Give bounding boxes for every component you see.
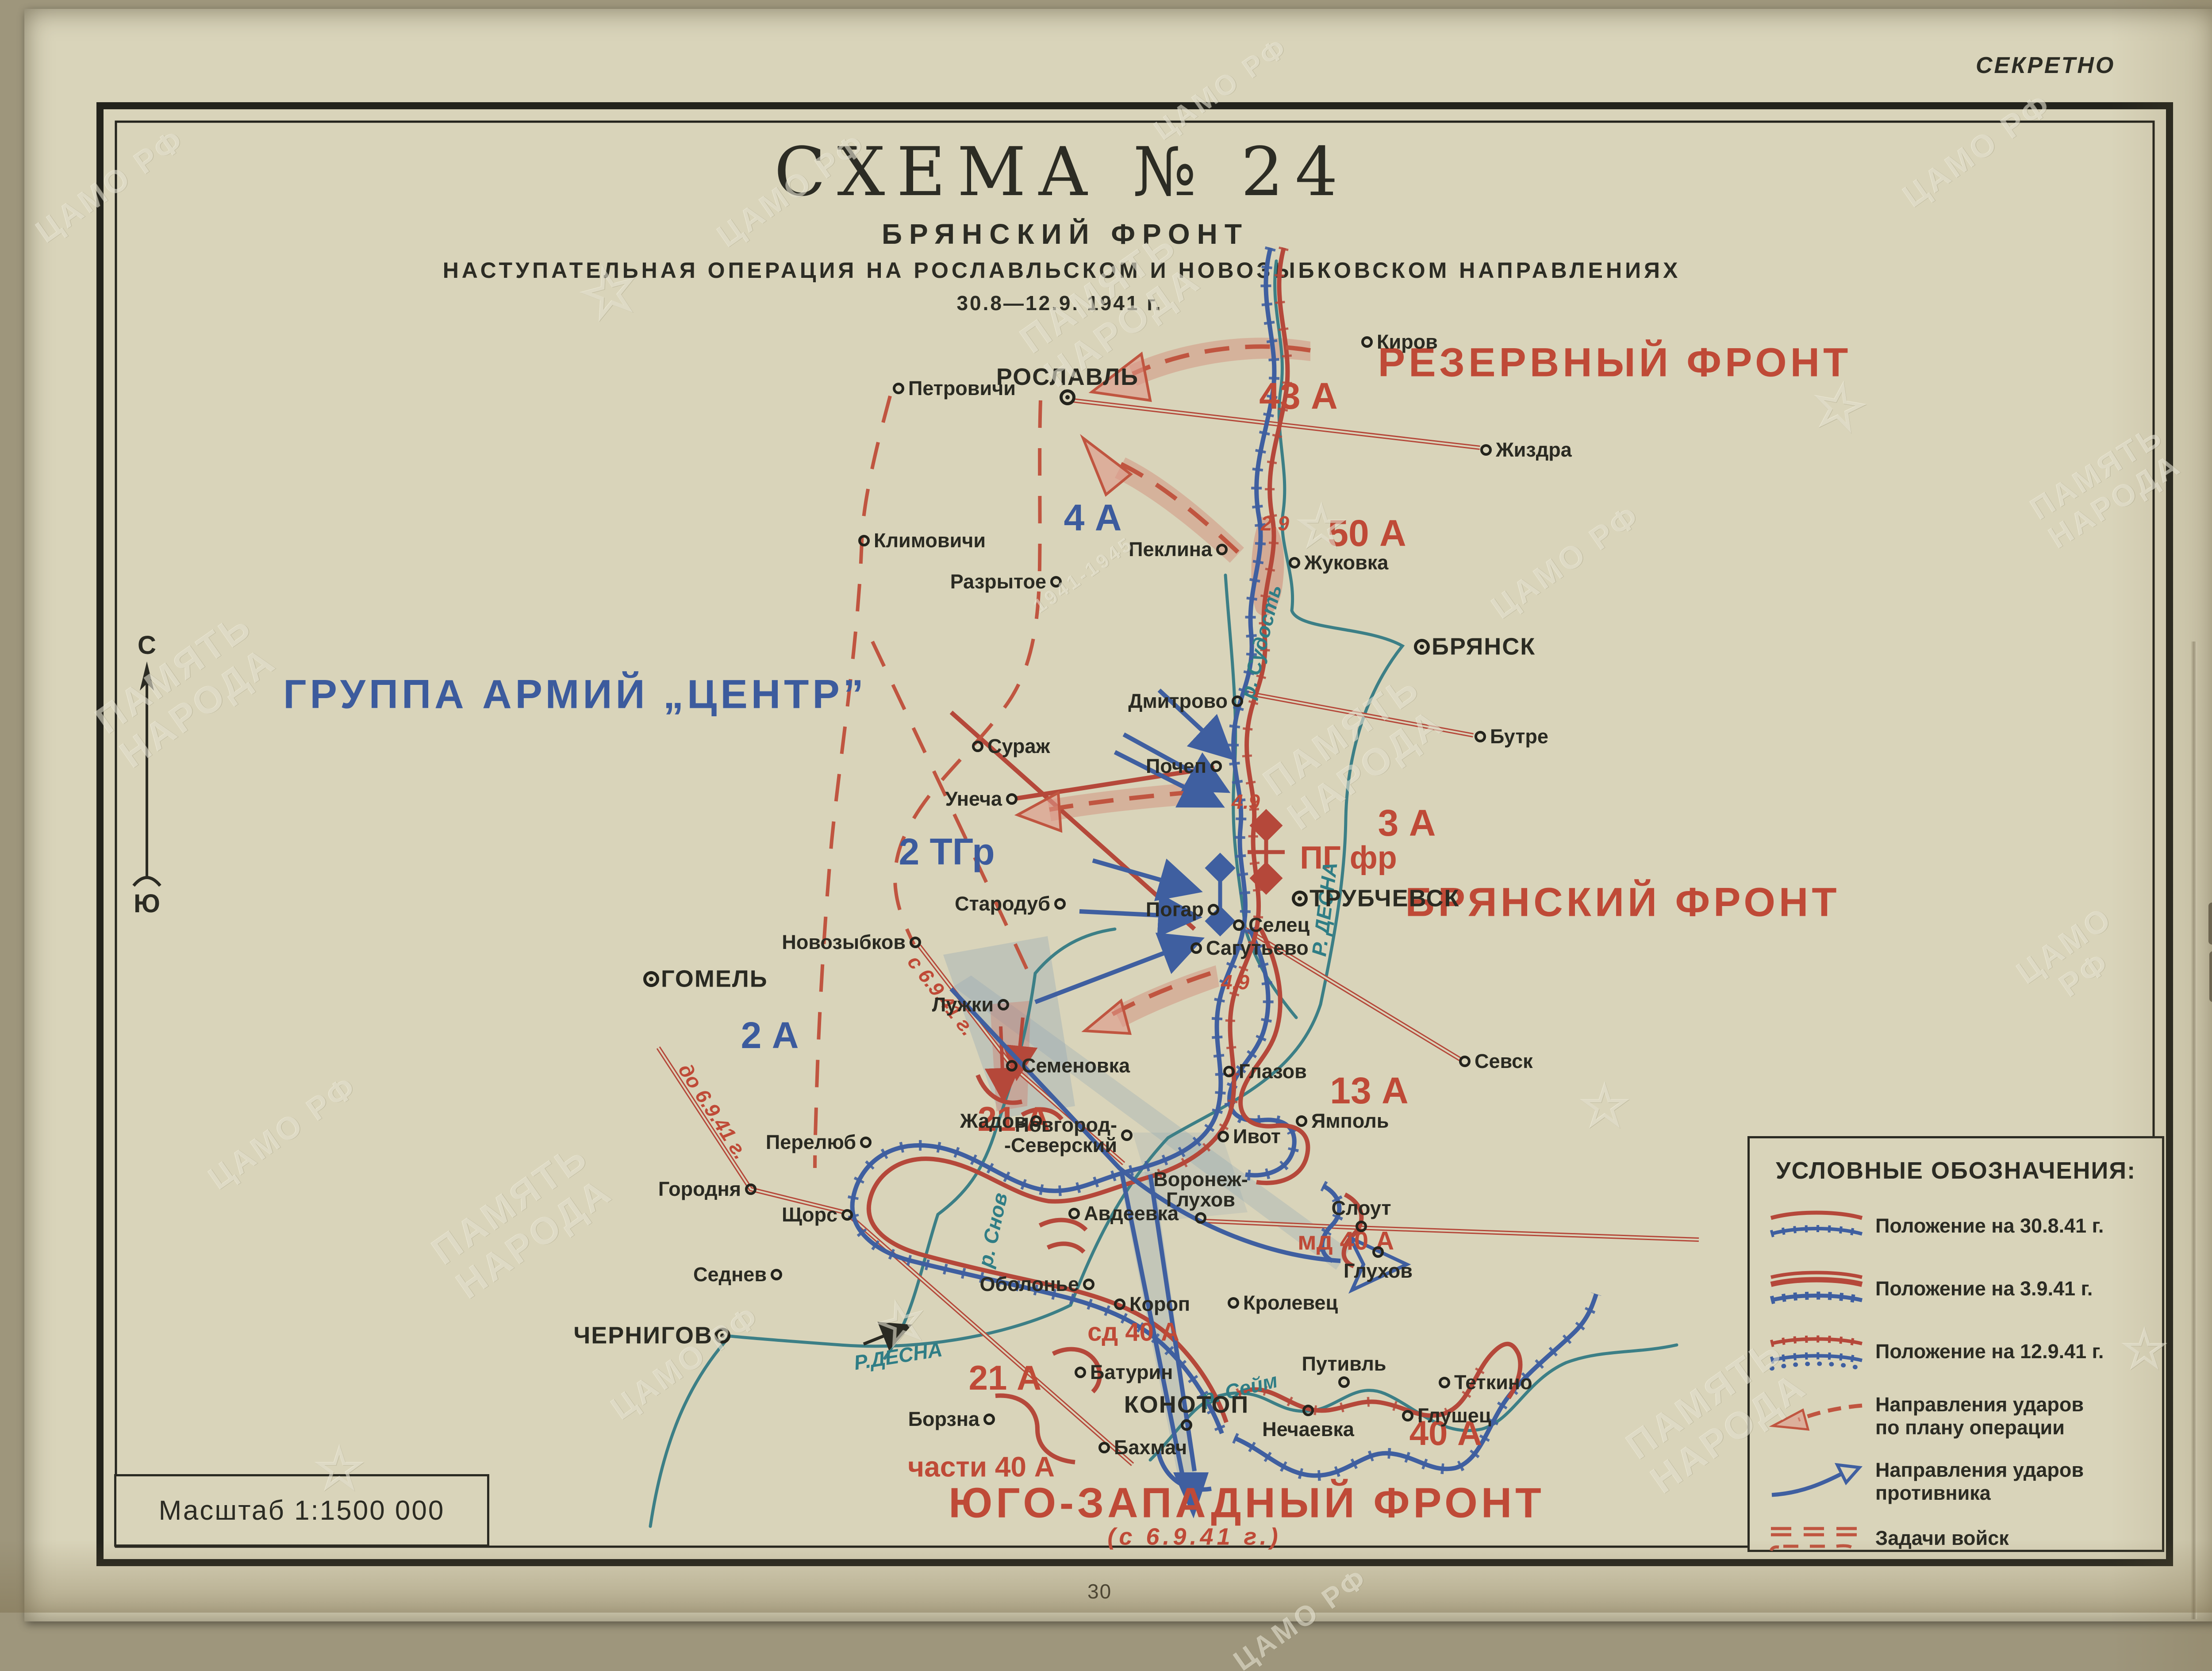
city-dot [1208,904,1219,915]
front-label: РЕЗЕРВНЫЙ ФРОНТ [1378,342,1852,384]
city-label: Жиздра [1496,440,1572,460]
front-label: (с 6.9.41 г.) [1107,1525,1281,1550]
city-dot [1075,1367,1086,1378]
date-label: 4.9 [1221,972,1249,993]
legend-item-label: Задачи войск [1875,1527,2009,1550]
city-dot [643,971,659,987]
city-label: Глухов [1344,1261,1413,1281]
city-label: Пеклина [1129,539,1212,560]
city-dot [858,535,870,546]
paper-crease [2191,642,2197,1619]
city-label: Климовичи [874,530,986,551]
city-label: Батурин [1090,1362,1173,1383]
city-label: Киров [1377,332,1438,352]
city-dot [1289,557,1300,569]
city-dot [1210,761,1222,772]
city-label: Сагутьево [1206,938,1309,958]
legend-item-label: Положение на 3.9.41 г. [1875,1277,2093,1300]
city-dot [745,1183,757,1195]
city-label: Стародуб [955,894,1050,914]
legend-item: Положение на 12.9.41 г. [1766,1330,2104,1373]
legend-symbol-pos-3-9 [1766,1268,1867,1310]
front-label: ЮГО-ЗАПАДНЫЙ ФРОНТ [949,1481,1545,1526]
city-dot [1302,1405,1314,1416]
page-number: 30 [1087,1579,1112,1603]
city-label: ГОМЕЛЬ [661,967,768,991]
city-label: Ивот [1233,1126,1281,1147]
city-dot [1060,389,1075,405]
city-dot [893,383,904,394]
legend-item-label: Положение на 30.8.41 г. [1875,1214,2104,1237]
city-label: Путивль [1302,1354,1386,1374]
city-label: Глазов [1239,1061,1307,1082]
front-label: БРЯНСКИЙ ФРОНТ [1405,881,1840,924]
city-dot [1223,1066,1235,1077]
legend-item: Направления ударов по плану операции [1766,1393,2084,1439]
city-label: Почеп [1146,756,1206,776]
binding-mark [2209,951,2212,1002]
city-dot [1006,1060,1018,1072]
scanned-map-page: СЕКРЕТНО СХЕМА № 24 БРЯНСКИЙ ФРОНТ НАСТУ… [0,0,2212,1671]
city-label: Щорс [782,1205,837,1225]
unit-label: 4 А [1064,498,1122,537]
legend-item-label: Направления ударов противника [1875,1459,2084,1505]
city-dot [1083,1279,1094,1290]
city-label: Сураж [987,736,1050,757]
front-label: ГРУППА АРМИЙ „ЦЕНТР” [283,673,867,716]
city-dot [1216,544,1228,555]
city-dot [1292,891,1308,907]
unit-label: 13 А [1330,1071,1408,1110]
city-dot [998,999,1009,1010]
city-dot [1459,1056,1471,1067]
city-dot [860,1137,872,1148]
city-label: Борзна [908,1409,979,1429]
binding-mark [2208,903,2212,945]
city-dot [1480,444,1492,456]
city-dot [1232,695,1243,707]
city-label: Бутре [1490,726,1548,747]
date-label: 4.9 [1232,791,1260,812]
city-label: Короп [1129,1294,1190,1314]
city-dot [1361,336,1373,348]
city-label: Седнев [693,1264,767,1285]
city-dot [1114,1298,1125,1310]
date-label: 2.9 [1261,513,1289,534]
city-dot [1475,731,1486,742]
city-dot [972,741,983,752]
compass-north-label: С [138,630,156,660]
map-subtitle-dates: 30.8—12.9. 1941 г. [956,291,1162,315]
city-label: РОСЛАВЛЬ [996,365,1139,389]
city-label: ЧЕРНИГОВ [573,1323,713,1348]
city-dot [1296,1115,1307,1127]
unit-label: сд 40 А [1087,1319,1179,1346]
city-label: Теткино [1454,1372,1532,1393]
city-dot [1181,1419,1192,1431]
map-subtitle-front: БРЯНСКИЙ ФРОНТ [882,218,1249,250]
city-dot [1098,1442,1110,1453]
city-label: Ямполь [1311,1111,1389,1131]
city-label: Севск [1475,1051,1533,1072]
unit-label: 43 А [1259,376,1337,415]
city-label: ТРУБЧЕВСК [1310,886,1460,910]
unit-label: ПГ фр [1300,841,1397,875]
city-dot [714,1328,730,1344]
city-dot [1356,1221,1367,1232]
city-label: Глушец [1417,1406,1491,1426]
map-subtitle-operation: НАСТУПАТЕЛЬНАЯ ОПЕРАЦИЯ НА РОСЛАВЛЬСКОМ … [443,257,1681,283]
unit-label: 21 А [969,1360,1042,1396]
city-dot [1006,793,1018,805]
city-label: Унеча [945,789,1002,809]
city-label: Семеновка [1022,1056,1130,1076]
compass-south-label: Ю [134,889,160,918]
legend-item: Положение на 3.9.41 г. [1766,1268,2093,1310]
city-dot [1402,1410,1413,1421]
map-title: СХЕМА № 24 [774,133,1349,211]
legend-item: Задачи войск [1766,1517,2009,1560]
unit-label: 3 А [1378,803,1436,842]
city-label: Новозыбков [782,932,906,953]
city-dot [1190,942,1202,954]
scale-label: Масштаб 1:1500 000 [159,1495,445,1526]
legend-item: Положение на 30.8.41 г. [1766,1205,2104,1247]
legend-item-label: Положение на 12.9.41 г. [1875,1340,2104,1363]
city-dot [910,937,921,948]
city-dot [771,1269,782,1280]
city-label: Новгород- -Северский [1004,1115,1117,1156]
city-dot [1228,1297,1239,1309]
city-label: БРЯНСК [1432,634,1536,659]
legend-symbol-tasks [1766,1517,1867,1560]
unit-label: 2 ТГр [899,832,995,871]
city-dot [1195,1212,1206,1224]
city-dot [1233,919,1244,931]
city-dot [1414,639,1430,655]
legend-symbol-pos-12-9 [1766,1330,1867,1373]
city-label: Нечаевка [1262,1419,1354,1440]
unit-label: части 40 А [908,1452,1055,1482]
city-label: Кролевец [1243,1293,1338,1313]
city-dot [1439,1377,1450,1388]
city-label: Селец [1248,915,1310,935]
city-label: Бахмач [1114,1437,1187,1458]
city-label: Слоут [1332,1198,1391,1218]
city-label: Дмитрово [1128,691,1228,711]
legend-box: УСЛОВНЫЕ ОБОЗНАЧЕНИЯ: Положение на 30.8.… [1747,1136,2164,1552]
city-dot [1372,1246,1384,1258]
city-dot [1050,576,1062,588]
city-dot [1121,1129,1133,1141]
city-label: КОНОТОП [1124,1393,1249,1417]
city-label: Перелюб [766,1132,856,1152]
city-dot [1338,1376,1350,1388]
city-label: Городня [658,1179,741,1199]
city-label: Лужки [932,995,994,1015]
unit-label: 50 А [1328,514,1406,553]
city-dot [1054,898,1066,910]
unit-label: 2 А [741,1016,799,1055]
secret-stamp: СЕКРЕТНО [1976,52,2115,79]
legend-symbol-pos-30-8 [1766,1205,1867,1247]
city-dot [841,1209,853,1221]
city-label: Жуковка [1304,553,1388,573]
city-dot [1217,1131,1229,1142]
city-label: Воронеж-Глухов [1153,1169,1248,1210]
city-label: Погар [1146,899,1204,920]
city-dot [1068,1208,1080,1219]
city-label: Оболонье [979,1274,1079,1295]
legend-title: УСЛОВНЫЕ ОБОЗНАЧЕНИЯ: [1750,1157,2162,1184]
legend-symbol-plan-strike [1766,1395,1867,1437]
scale-box: Масштаб 1:1500 000 [114,1474,489,1547]
legend-item: Направления ударов противника [1766,1459,2084,1505]
city-dot [983,1414,995,1425]
legend-symbol-enemy-strike [1766,1460,1867,1503]
city-label: Разрытое [950,572,1046,592]
legend-item-label: Направления ударов по плану операции [1875,1393,2084,1439]
